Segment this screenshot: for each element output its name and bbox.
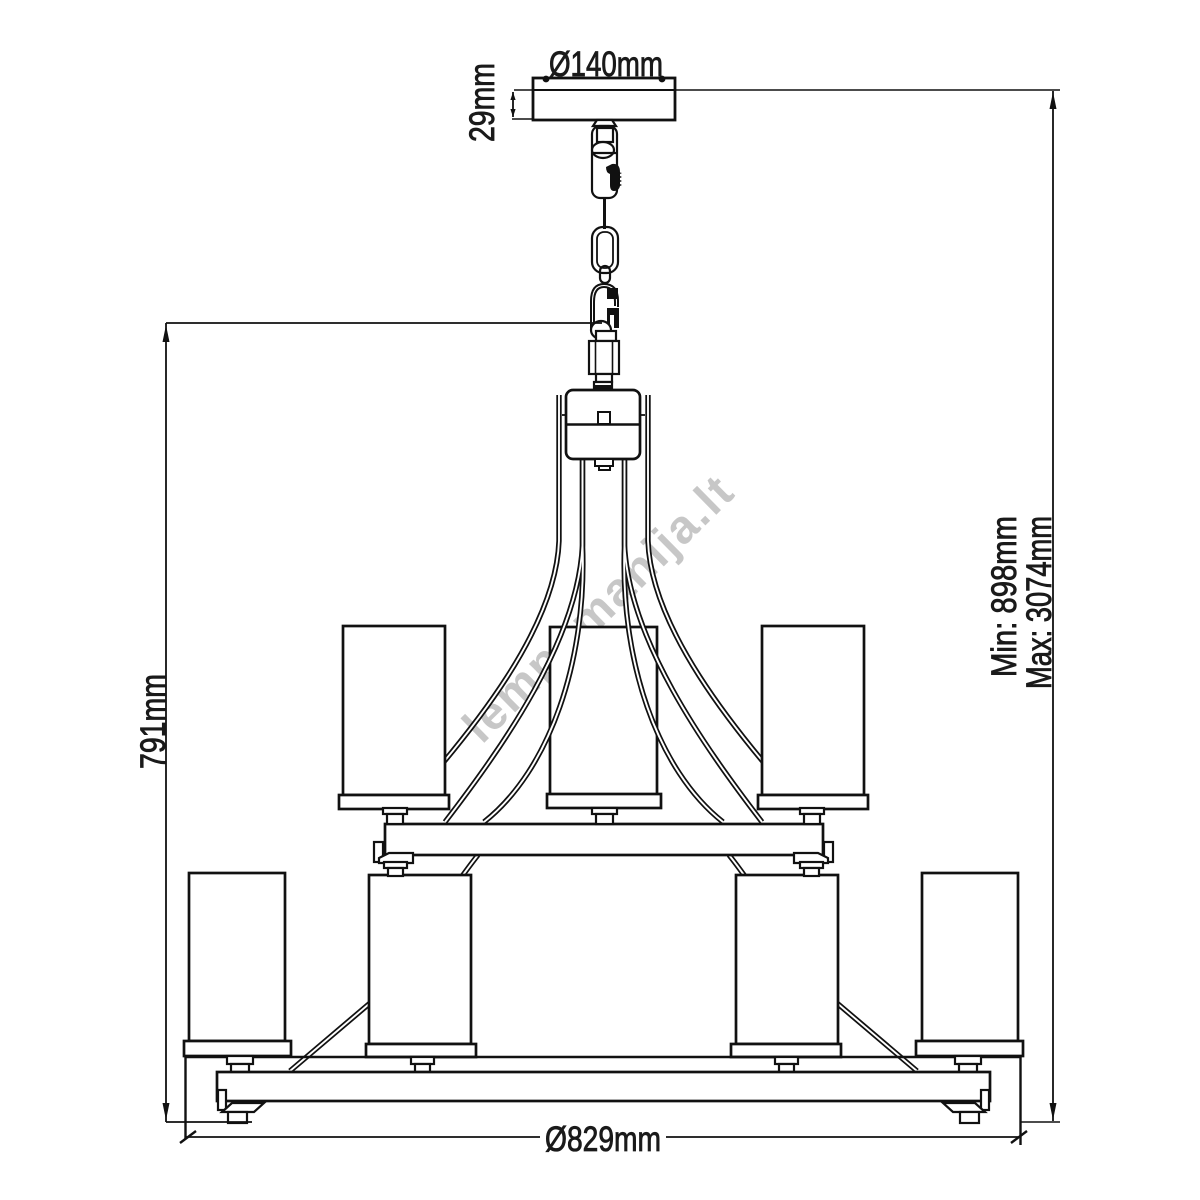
svg-text:Max: 3074mm: Max: 3074mm	[1020, 516, 1059, 689]
svg-text:Min: 898mm: Min: 898mm	[985, 516, 1024, 677]
svg-text:791mm: 791mm	[134, 674, 173, 769]
svg-text:Ø829mm: Ø829mm	[545, 1120, 661, 1159]
svg-text:29mm: 29mm	[463, 63, 502, 142]
svg-text:Ø140mm: Ø140mm	[549, 45, 663, 84]
